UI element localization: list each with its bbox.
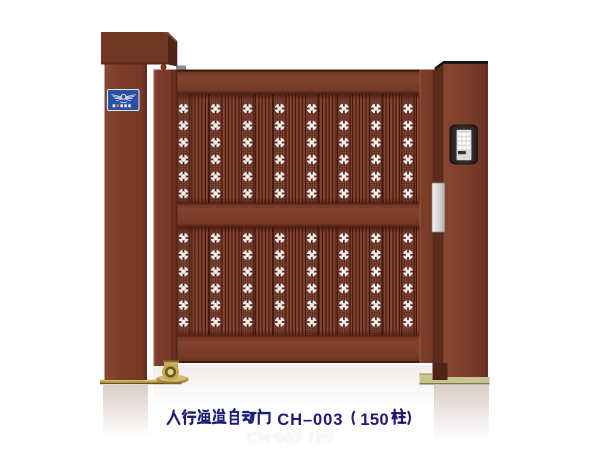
svg-text:150: 150	[360, 410, 389, 429]
svg-text:CH–003: CH–003	[277, 410, 343, 429]
